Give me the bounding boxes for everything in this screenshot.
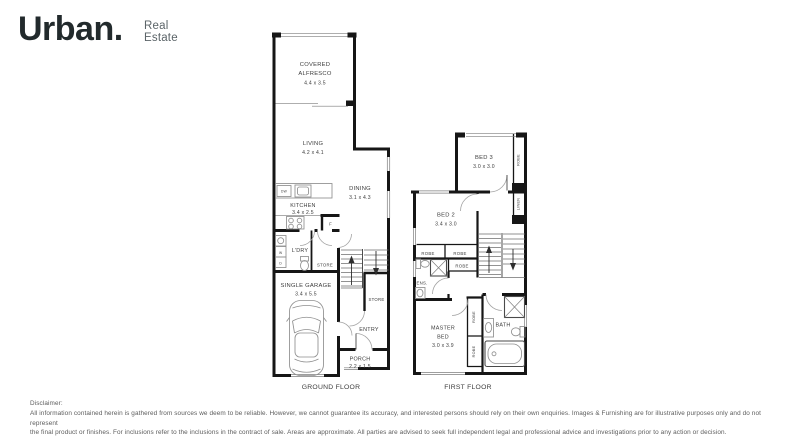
disclaimer-line-1: All information contained herein is gath… — [30, 409, 790, 429]
stairs-first — [479, 233, 525, 278]
burner — [289, 224, 294, 229]
room-dims-kitchen: 3.4 x 2.5 — [292, 210, 314, 216]
bath-vanity-basin — [485, 323, 491, 333]
laundry-tub-bowl — [278, 238, 284, 244]
room-label-master-1: MASTER — [431, 326, 455, 332]
bathtub — [485, 341, 525, 367]
ens-wc-cistern — [416, 259, 421, 269]
appliance-label-fridge: F — [329, 222, 332, 227]
room-dims-porch: 2.2 x 1.5 — [349, 364, 371, 370]
room-label-dining: DINING — [349, 186, 371, 192]
kitchen-sink-bowl — [298, 187, 309, 195]
room-label-alfresco-1: COVERED — [300, 62, 330, 68]
bed2-top-window — [419, 191, 449, 193]
robe-label-master-top: ROBE — [472, 311, 476, 323]
room-label-garage: SINGLE GARAGE — [281, 283, 332, 289]
disclaimer-title: Disclaimer: — [30, 399, 790, 409]
robe-label-hall: ROBE — [455, 264, 468, 269]
room-dims-living: 4.2 x 4.1 — [302, 150, 324, 156]
wall-block — [512, 183, 526, 192]
bath-wc-bowl — [511, 328, 520, 336]
robe-label-bed2-right: ROBE — [453, 251, 466, 256]
room-label-master-2: BED — [437, 335, 449, 341]
appliance-label-washer: W — [279, 251, 283, 255]
room-dims-dining: 3.1 x 4.3 — [349, 195, 371, 201]
alfresco-slider-door — [276, 104, 349, 107]
room-label-ensuite: ENS. — [416, 281, 427, 286]
laundry-tub — [276, 236, 287, 247]
appliance-label-dryer: D — [279, 261, 282, 265]
wall-block — [272, 33, 281, 38]
room-label-bath: BATH — [496, 323, 511, 329]
bathtub-drain — [492, 352, 496, 356]
ensuite-fixtures — [416, 259, 447, 299]
robe-label-master-bottom: ROBE — [472, 345, 476, 357]
floorplan-page: Urban. Real Estate — [0, 0, 800, 437]
burner — [289, 218, 294, 223]
room-dims-garage: 3.4 x 5.5 — [295, 292, 317, 298]
room-label-kitchen: KITCHEN — [290, 203, 315, 209]
room-label-bed3: BED 3 — [475, 155, 493, 161]
room-label-living: LIVING — [303, 141, 324, 147]
first-floor-title: FIRST FLOOR — [444, 384, 492, 391]
first-floor-plan: BED 3 3.0 x 3.0 ROBE LINEN BED 2 3.4 x 3… — [411, 133, 528, 392]
room-label-laundry: L'DRY — [292, 248, 309, 254]
bathtub-inner — [488, 344, 522, 364]
burner — [297, 224, 302, 229]
wall-block — [346, 101, 356, 107]
wall-block — [455, 133, 465, 138]
alfresco-screen — [281, 34, 348, 37]
room-label-entry: ENTRY — [359, 327, 379, 333]
ens-vanity-basin — [417, 289, 423, 297]
room-dims-master: 3.0 x 3.9 — [432, 343, 454, 349]
room-dims-alfresco: 4.4 x 3.5 — [304, 81, 326, 87]
bed3-window — [466, 134, 516, 137]
room-label-alfresco-2: ALFRESCO — [298, 71, 331, 77]
room-dims-bed3: 3.0 x 3.0 — [473, 164, 495, 170]
robe-label-bed2-left: ROBE — [421, 251, 434, 256]
wall-block — [516, 133, 526, 138]
room-label-porch: PORCH — [350, 357, 371, 363]
room-label-store-entry: STORE — [369, 297, 385, 302]
disclaimer-line-2: the final product or finishes. For inclu… — [30, 428, 790, 437]
linen-label: LINEN — [517, 198, 521, 210]
disclaimer: Disclaimer: All information contained he… — [30, 399, 790, 437]
robe-label-bed3: ROBE — [517, 154, 521, 166]
wall-block — [348, 33, 357, 38]
room-dims-bed2: 3.4 x 3.0 — [435, 222, 457, 228]
room-label-bed2: BED 2 — [437, 213, 455, 219]
ground-floor-plan: COVERED ALFRESCO 4.4 x 3.5 LIVING 4.2 x … — [272, 33, 391, 392]
appliance-label-dw: DW — [281, 190, 288, 194]
ground-floor-title: GROUND FLOOR — [302, 384, 361, 391]
bath-fixtures — [484, 297, 526, 367]
door-arcs-first — [433, 175, 508, 316]
room-label-store-understairs: STORE — [317, 263, 333, 268]
ens-wc-bowl — [421, 260, 429, 267]
floor-plan-drawing: COVERED ALFRESCO 4.4 x 3.5 LIVING 4.2 x … — [0, 0, 800, 437]
wall-block — [512, 215, 526, 224]
car-illustration — [287, 301, 327, 376]
burner — [297, 218, 302, 223]
wc-bowl — [301, 261, 309, 271]
